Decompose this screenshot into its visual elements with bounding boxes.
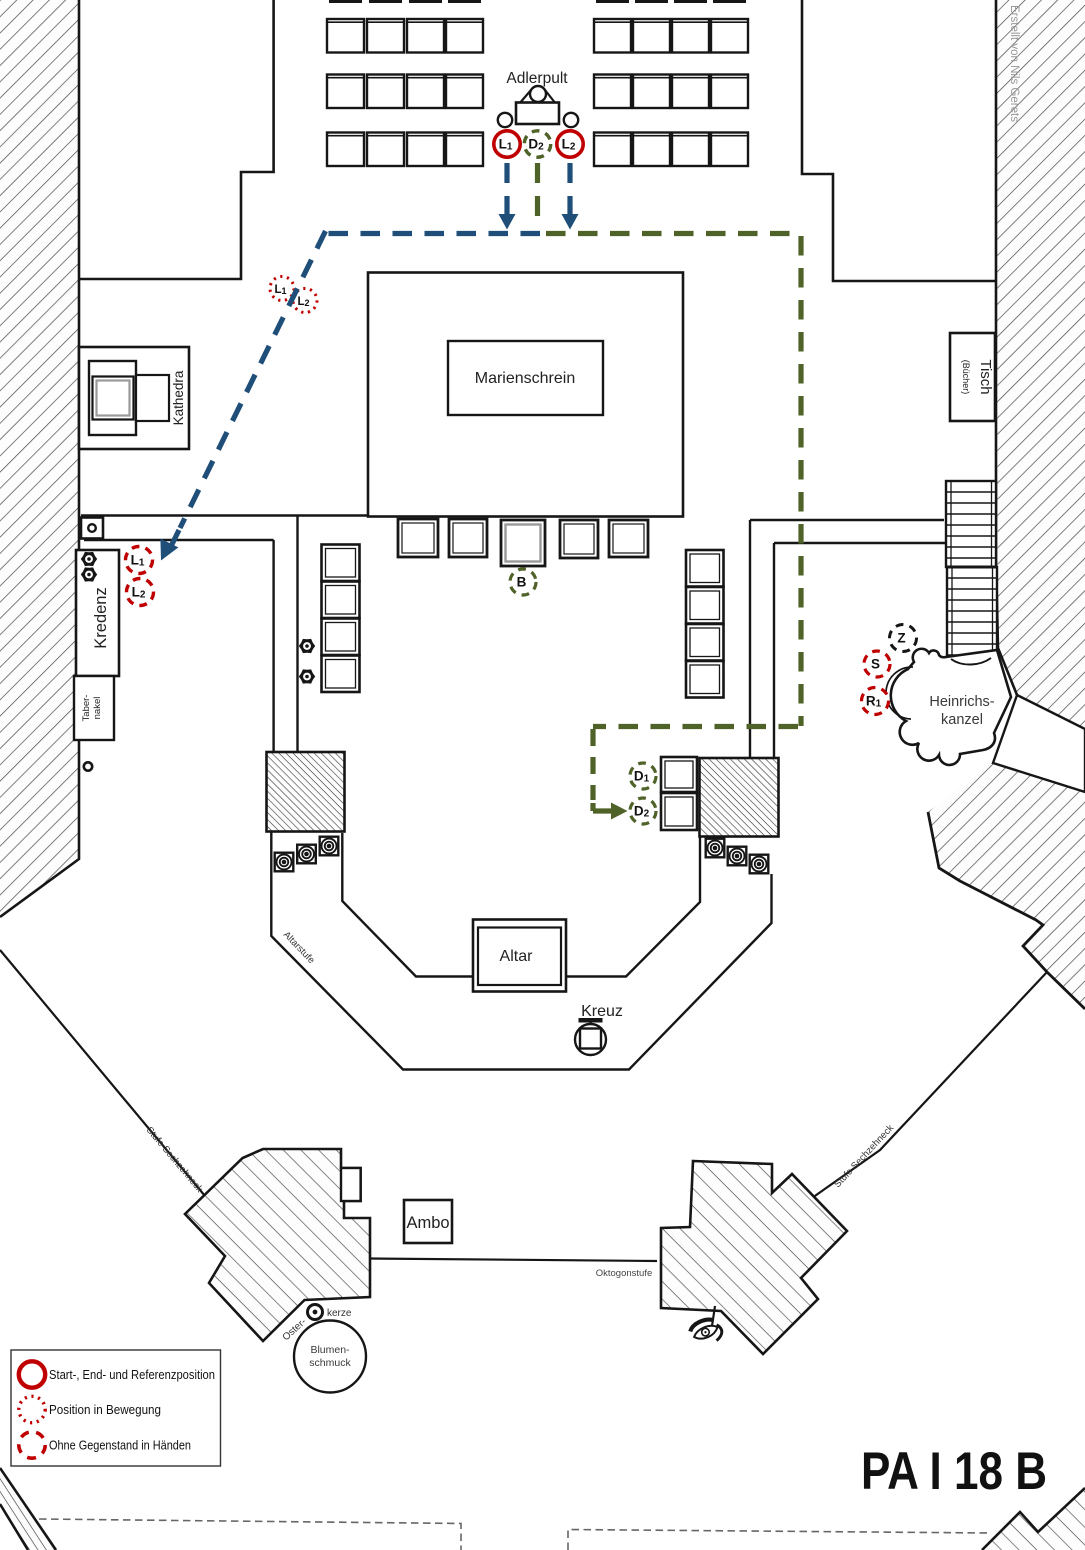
svg-text:Tisch: Tisch [977,359,994,394]
svg-text:(Bücher): (Bücher) [961,360,971,395]
svg-text:Kredenz: Kredenz [92,587,110,648]
svg-text:kerze: kerze [327,1308,352,1319]
svg-text:Kreuz: Kreuz [581,1003,623,1020]
svg-text:kanzel: kanzel [941,712,983,728]
svg-text:Ambo: Ambo [406,1214,449,1232]
svg-text:Oktogonstufe: Oktogonstufe [596,1268,653,1279]
svg-text:Z: Z [897,631,905,646]
svg-text:L1: L1 [274,284,286,296]
svg-text:Adlerpult: Adlerpult [506,70,568,87]
svg-text:S: S [871,657,880,672]
svg-text:Heinrichs-: Heinrichs- [929,694,994,710]
svg-text:nakel: nakel [92,697,103,720]
svg-text:Position in Bewegung: Position in Bewegung [49,1402,161,1417]
svg-text:Blumen-: Blumen- [310,1344,350,1356]
svg-text:Altar: Altar [500,948,534,965]
svg-text:Ohne Gegenstand in Händen: Ohne Gegenstand in Händen [49,1438,191,1453]
svg-text:Kathedra: Kathedra [171,370,186,425]
svg-text:PA I 18 B: PA I 18 B [861,1442,1047,1501]
svg-text:Erstellt von Nils Gerets: Erstellt von Nils Gerets [1008,5,1020,122]
svg-text:B: B [517,575,527,590]
svg-text:Taber-: Taber- [81,695,92,722]
svg-text:Start-, End- und Referenzposit: Start-, End- und Referenzposition [49,1367,215,1382]
svg-text:L2: L2 [297,296,309,308]
svg-text:Marienschrein: Marienschrein [475,370,575,387]
svg-text:schmuck: schmuck [309,1357,351,1369]
